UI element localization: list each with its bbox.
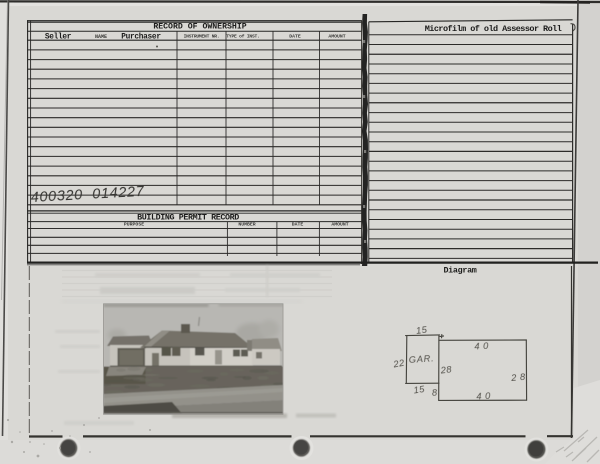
svg-text:RECORD OF OWNERSHIP: RECORD OF OWNERSHIP (153, 23, 246, 32)
svg-text:Microfilm of old Assessor Roll: Microfilm of old Assessor Roll (425, 24, 562, 34)
svg-text:INSTRUMENT NR.: INSTRUMENT NR. (184, 34, 220, 40)
svg-text:4 0: 4 0 (476, 391, 491, 402)
svg-text:BUILDING PERMIT RECORD: BUILDING PERMIT RECORD (137, 213, 239, 223)
svg-text:15: 15 (415, 324, 428, 336)
svg-text:PURPOSE: PURPOSE (124, 222, 144, 228)
svg-text:TYPE of INST.: TYPE of INST. (226, 34, 259, 40)
svg-text:4 0: 4 0 (474, 341, 489, 352)
svg-text:AMOUNT: AMOUNT (328, 34, 345, 40)
svg-text:28: 28 (439, 364, 453, 375)
svg-text:NUMBER: NUMBER (238, 222, 255, 228)
svg-text:Diagram: Diagram (443, 265, 476, 275)
svg-text:DATE: DATE (292, 222, 304, 228)
svg-text:GAR.: GAR. (408, 353, 434, 365)
svg-text:AMOUNT: AMOUNT (331, 222, 348, 228)
svg-text:DATE: DATE (289, 34, 301, 40)
svg-text:15: 15 (413, 384, 426, 396)
svg-text:NAME: NAME (95, 34, 107, 40)
svg-text:2 8: 2 8 (510, 372, 527, 383)
